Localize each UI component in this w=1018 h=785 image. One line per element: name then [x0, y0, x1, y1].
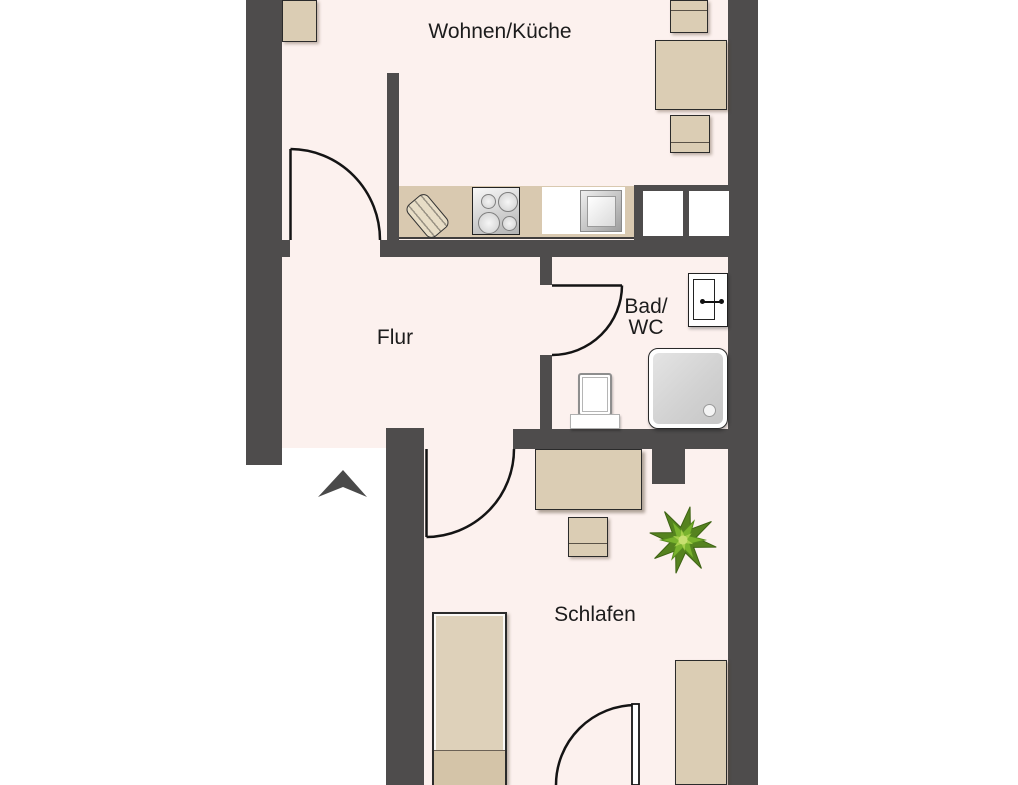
burner	[481, 194, 496, 209]
burner	[478, 212, 500, 234]
kitchen-sink-icon	[542, 187, 625, 234]
bed-footer	[434, 750, 505, 785]
burner	[502, 216, 517, 231]
cabinet-handle-dot	[719, 299, 724, 304]
sink-basin-inner	[587, 196, 616, 227]
shower-tray	[653, 353, 723, 424]
chair-backrest-line	[671, 142, 709, 143]
outside-area	[240, 448, 386, 785]
bed	[432, 612, 507, 785]
wall-left-exterior	[246, 0, 282, 465]
wardrobe-top-left	[282, 0, 317, 42]
sink-basin	[580, 190, 622, 232]
room-label-schlafen: Schlafen	[554, 604, 636, 625]
wall-right-exterior	[728, 0, 758, 785]
wardrobe-right	[675, 660, 727, 785]
burner	[498, 192, 518, 212]
wall-flur-kitchen-left-stub	[246, 240, 290, 257]
floor-plan: Wohnen/Küche Flur Bad/ WC Schlafen	[0, 0, 1018, 785]
room-label-flur: Flur	[377, 327, 413, 348]
room-label-wohnen-kueche: Wohnen/Küche	[428, 21, 571, 42]
dining-chair	[670, 0, 708, 33]
toilet-tank	[570, 414, 620, 429]
desk-chair	[568, 517, 608, 557]
chair-backrest-line	[671, 10, 707, 11]
shaft-window	[689, 191, 729, 236]
room-label-bad-wc: Bad/ WC	[624, 296, 667, 338]
cooktop-icon	[472, 187, 520, 235]
wall-bad-schlafen	[513, 429, 758, 449]
wall-schlafen-left-exterior	[386, 428, 424, 785]
wall-flur-bad-bottom	[540, 355, 552, 430]
dining-chair	[670, 115, 710, 153]
dining-table	[655, 40, 727, 110]
desk	[535, 449, 642, 510]
bathroom-cabinet-icon	[688, 273, 728, 327]
chair-backrest-line	[569, 543, 607, 544]
cabinet-handle-dot	[700, 299, 705, 304]
wall-pillar-stub	[652, 449, 685, 484]
shower-icon	[648, 348, 728, 429]
shaft-window	[643, 191, 683, 236]
wall-kitchen-vertical	[387, 73, 399, 240]
room-label-bad-line2: WC	[624, 317, 667, 338]
shower-drain	[703, 404, 716, 417]
wall-flur-bad-top	[540, 257, 552, 285]
toilet-icon	[578, 373, 612, 416]
wall-flur-kitchen	[380, 240, 758, 257]
room-label-bad-line1: Bad/	[624, 296, 667, 317]
